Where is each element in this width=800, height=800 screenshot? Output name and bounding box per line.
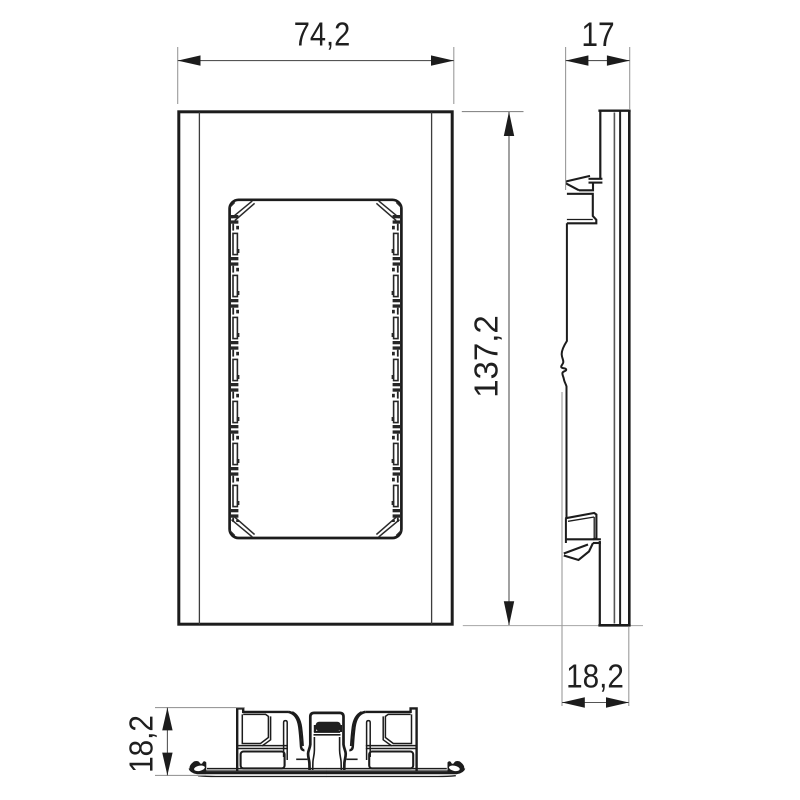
svg-text:74,2: 74,2: [294, 16, 351, 53]
svg-text:137,2: 137,2: [468, 315, 505, 398]
svg-text:18,2: 18,2: [566, 658, 624, 695]
svg-text:18,2: 18,2: [123, 715, 160, 773]
svg-text:17: 17: [581, 15, 614, 53]
